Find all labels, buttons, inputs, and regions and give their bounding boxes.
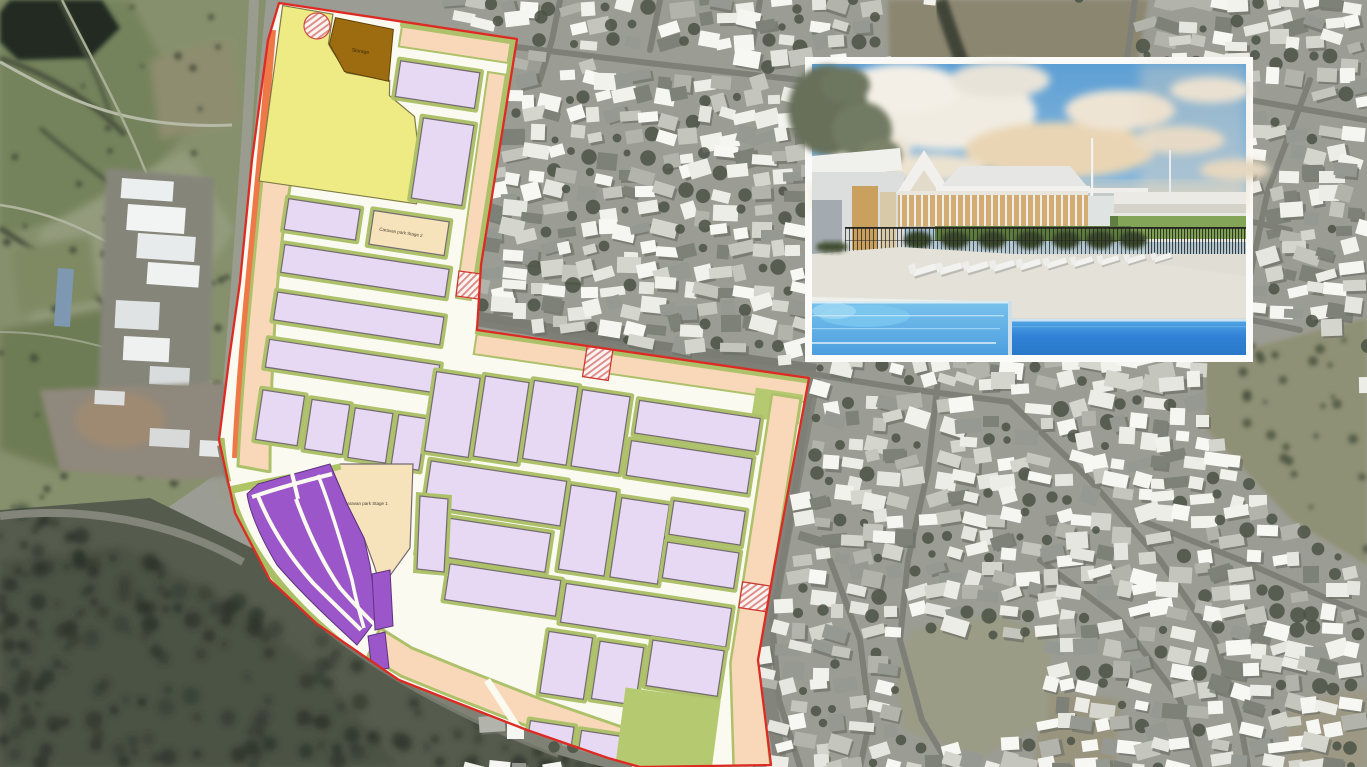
svg-text:Caravan park Stage 1: Caravan park Stage 1 bbox=[344, 501, 388, 506]
